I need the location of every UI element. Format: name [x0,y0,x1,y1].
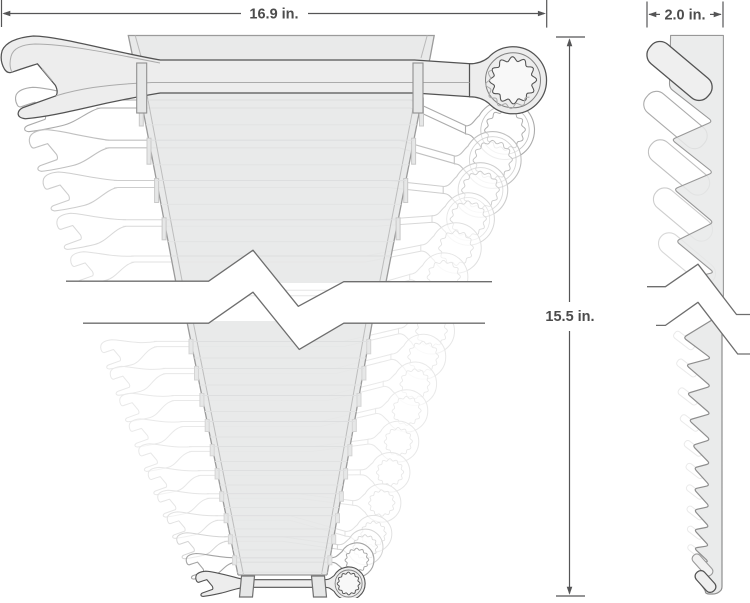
svg-text:16.9 in.: 16.9 in. [249,7,298,23]
svg-text:15.5 in.: 15.5 in. [545,309,594,325]
svg-text:2.0 in.: 2.0 in. [664,8,705,24]
